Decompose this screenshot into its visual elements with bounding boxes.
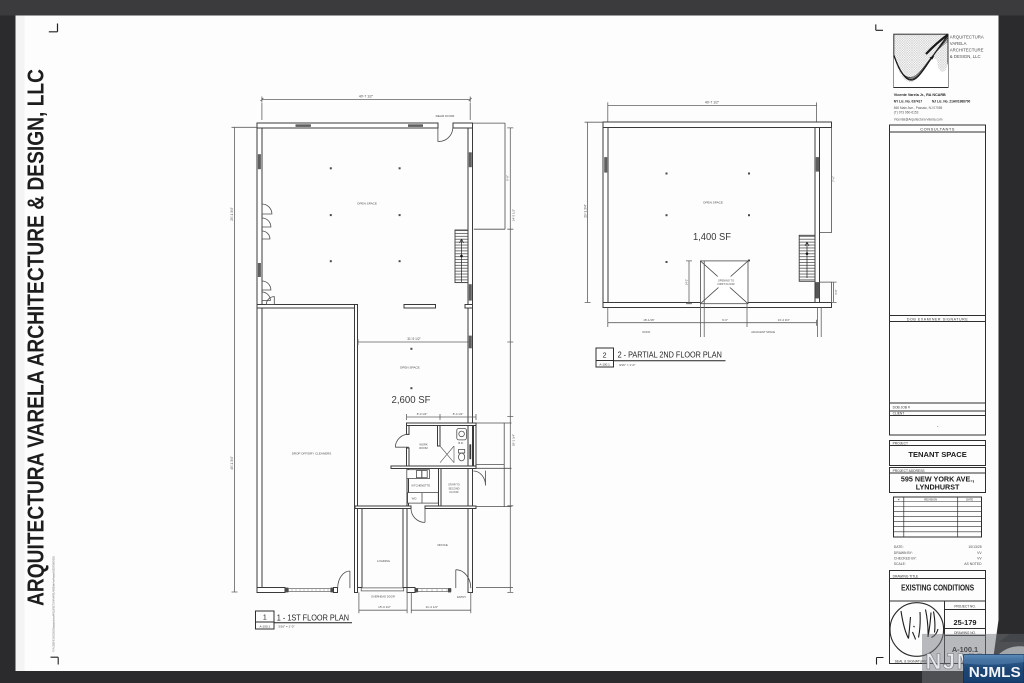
svg-text:NJMLS: NJMLS [969,665,1021,681]
svg-text:DOB EXAMINER SIGNATURE: DOB EXAMINER SIGNATURE [907,318,968,322]
svg-text:ARQUITECTURA VARELA ARCHITECTU: ARQUITECTURA VARELA ARCHITECTURE & DESIG… [23,69,49,606]
svg-text:VV: VV [977,556,982,560]
svg-text:SCALE:: SCALE: [894,562,906,566]
svg-text:NY Lic. No. 037417: NY Lic. No. 037417 [894,100,923,104]
svg-text:OVERHEAD DOOR: OVERHEAD DOOR [371,595,395,599]
svg-text:DATE:: DATE: [894,545,904,549]
svg-text:8'-0 1/2": 8'-0 1/2" [417,412,428,416]
svg-text:25-179: 25-179 [953,618,976,627]
svg-text:14'-2": 14'-2" [686,279,689,285]
svg-text:9'-8": 9'-8" [505,175,509,181]
svg-text:LYNDHURST: LYNDHURST [916,483,960,492]
svg-text:ROOF: ROOF [643,330,651,334]
svg-text:& DESIGN, LLC: & DESIGN, LLC [950,54,981,59]
svg-text:VARELA: VARELA [950,41,967,46]
svg-text:ARQUITECTURA: ARQUITECTURA [950,34,984,39]
svg-text:OPEN SPACE: OPEN SPACE [357,202,377,206]
svg-text:15'-0 1/2": 15'-0 1/2" [378,605,391,609]
svg-text:WORK: WORK [419,442,428,446]
svg-text:VV: VV [977,551,982,555]
svg-text:OPEN SPACE: OPEN SPACE [703,200,723,204]
svg-text:REAR DOOR: REAR DOOR [436,114,456,118]
svg-text:DRAWING TITLE: DRAWING TITLE [893,574,919,578]
svg-text:Vicente Varela Jr., RA NCARB: Vicente Varela Jr., RA NCARB [894,93,946,97]
svg-text:11'-2 1/2": 11'-2 1/2" [426,605,438,609]
svg-text:DOB JOB #: DOB JOB # [893,405,910,409]
svg-text:DROP OFF/DRY CLEANERS: DROP OFF/DRY CLEANERS [292,452,332,456]
svg-text:40'-7 1/2": 40'-7 1/2" [705,101,720,105]
svg-text:9'-0": 9'-0" [722,318,728,322]
svg-text:CLIENT: CLIENT [893,412,905,416]
svg-text:B.R.: B.R. [458,441,463,445]
svg-text:CHECKED BY:: CHECKED BY: [894,556,917,560]
svg-text:ARCHITECTURE: ARCHITECTURE [950,47,984,52]
svg-text:6'-8": 6'-8" [835,289,838,294]
svg-text:24'-5 1/2": 24'-5 1/2" [511,209,515,221]
svg-text:2 - PARTIAL 2ND FLOOR PLAN: 2 - PARTIAL 2ND FLOOR PLAN [618,350,722,360]
svg-text:TENANT SPACE: TENANT SPACE [908,450,967,459]
svg-text:860 Main Ave., Passaic, NJ 070: 860 Main Ave., Passaic, NJ 07055 [894,106,943,110]
svg-text:CONSULTANTS: CONSULTANTS [920,126,955,131]
svg-text:OPEN SPACE: OPEN SPACE [400,365,420,369]
svg-text:ENTRY: ENTRY [457,595,466,599]
svg-text:1,400 SF: 1,400 SF [693,232,731,243]
svg-text:FIRST FLOOR: FIRST FLOOR [717,282,734,286]
svg-text:KITCHENETTE: KITCHENETTE [411,483,430,487]
svg-text:PROJECT ADDRESS: PROJECT ADDRESS [893,469,926,473]
svg-text:A-100.1: A-100.1 [260,625,271,629]
svg-text:DRAWN BY:: DRAWN BY: [894,551,913,555]
svg-text:1 - 1ST FLOOR PLAN: 1 - 1ST FLOOR PLAN [277,613,349,623]
svg-text:Vicental@Arquitectura-Varela.c: Vicental@Arquitectura-Varela.com [894,118,943,122]
svg-text:8'-4 1/2": 8'-4 1/2" [453,412,464,416]
svg-text:29'-1 3/4": 29'-1 3/4" [511,434,515,446]
svg-text:3/16" = 1'-0": 3/16" = 1'-0" [619,363,635,367]
svg-text:EXISTING CONDITIONS: EXISTING CONDITIONS [901,584,974,593]
svg-text:3/16" = 1'-0": 3/16" = 1'-0" [278,625,294,629]
svg-text:© VV 2025 NO 10-13-25 218 sp: © VV 2025 NO 10-13-25 218 spacious hand … [52,556,56,652]
svg-text:SECOND: SECOND [448,486,459,490]
svg-text:40'-7 1/2": 40'-7 1/2" [359,95,374,99]
svg-text:ROOM: ROOM [419,446,428,450]
svg-text:STAIR TO: STAIR TO [448,483,460,487]
svg-text:7'-6": 7'-6" [832,176,836,182]
svg-text:A-100.1: A-100.1 [599,362,610,366]
svg-text:W/D: W/D [412,498,417,501]
svg-text:OFFICE: OFFICE [437,543,448,547]
svg-text:49'-1 3/4": 49'-1 3/4" [230,456,234,469]
svg-text:OPENING TO: OPENING TO [718,278,734,282]
svg-text:PROJECT: PROJECT [893,442,908,446]
svg-text:10/13/25: 10/13/25 [968,545,981,549]
svg-text:LOADING: LOADING [377,559,391,563]
svg-text:29'-1 3/4": 29'-1 3/4" [583,204,587,217]
svg-text:(T) 973 960-6153: (T) 973 960-6153 [894,110,919,114]
svg-text:NJ Lic. No. 21AI01988700: NJ Lic. No. 21AI01988700 [932,100,970,104]
svg-text:18'-1/16": 18'-1/16" [643,318,654,322]
svg-text:DATE: DATE [966,498,973,502]
svg-text:ADJACENT SPACE: ADJACENT SPACE [751,330,775,334]
svg-text:AS NOTED: AS NOTED [964,562,982,566]
svg-text:FLOOR: FLOOR [450,490,459,494]
svg-text:PROJECT NO.: PROJECT NO. [954,604,975,608]
svg-text:REVISION: REVISION [924,498,937,502]
svg-text:31'-9 1/2": 31'-9 1/2" [407,337,420,341]
svg-text:29'-1 3/4": 29'-1 3/4" [230,207,234,220]
svg-text:13'-4 3/4": 13'-4 3/4" [778,318,790,322]
svg-text:1: 1 [263,614,267,621]
svg-text:2,600 SF: 2,600 SF [392,395,431,406]
svg-text:2: 2 [603,352,607,359]
